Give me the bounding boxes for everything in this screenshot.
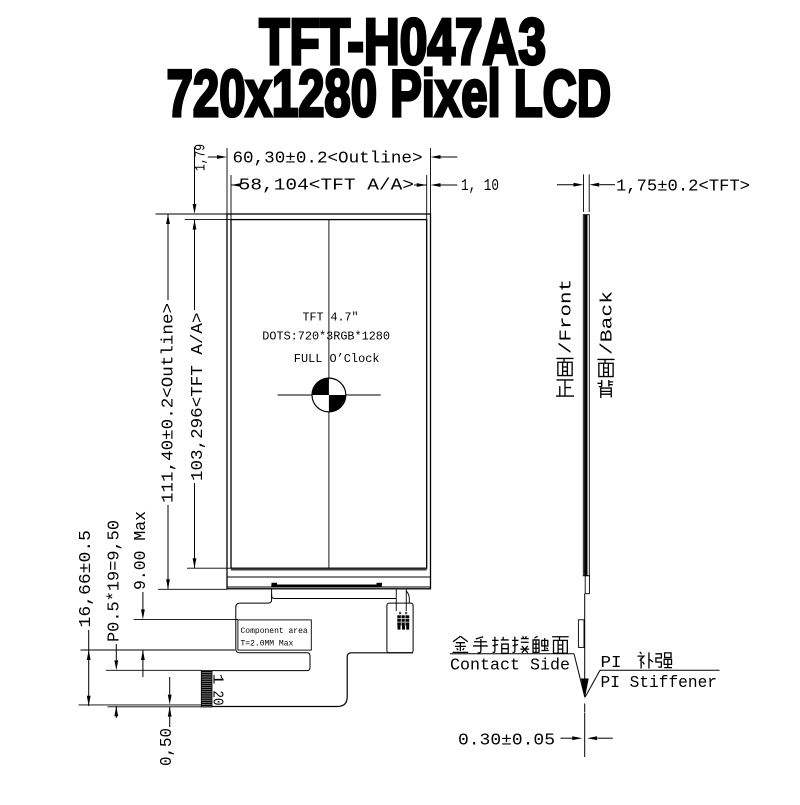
svg-text:9.00 Max: 9.00 Max bbox=[131, 511, 150, 590]
svg-text:FULL O’Clock: FULL O’Clock bbox=[294, 352, 380, 366]
svg-text:PI: PI bbox=[601, 653, 622, 672]
svg-text:1,75±0.2<TFT>: 1,75±0.2<TFT> bbox=[616, 177, 750, 196]
svg-text:/Back: /Back bbox=[597, 291, 616, 355]
svg-text:1, 10: 1, 10 bbox=[461, 176, 499, 195]
svg-text:0,50: 0,50 bbox=[157, 728, 176, 766]
svg-text:20: 20 bbox=[209, 691, 226, 706]
svg-text:1,79: 1,79 bbox=[193, 144, 210, 171]
svg-text:T=2.0MM Max: T=2.0MM Max bbox=[241, 640, 294, 649]
svg-text:Contact Side: Contact Side bbox=[450, 656, 570, 675]
svg-text:58,104<TFT A/A>: 58,104<TFT A/A> bbox=[239, 176, 414, 195]
svg-text:TFT 4.7″: TFT 4.7″ bbox=[303, 311, 359, 325]
svg-text:P0.5*19=9,50: P0.5*19=9,50 bbox=[104, 520, 123, 642]
svg-text:0.30±0.05: 0.30±0.05 bbox=[458, 731, 555, 750]
svg-text:16,66±0.5: 16,66±0.5 bbox=[76, 530, 95, 628]
svg-text:PI Stiffener: PI Stiffener bbox=[601, 673, 718, 692]
svg-text:/Front: /Front bbox=[556, 279, 575, 354]
svg-text:720x1280 Pixel LCD: 720x1280 Pixel LCD bbox=[167, 57, 611, 131]
svg-text:111,40±0.2<Outline>: 111,40±0.2<Outline> bbox=[158, 303, 177, 503]
svg-text:Component area: Component area bbox=[241, 627, 308, 636]
svg-text:DOTS:720*3RGB*1280: DOTS:720*3RGB*1280 bbox=[262, 330, 390, 344]
svg-text:60,30±0.2<Outline>: 60,30±0.2<Outline> bbox=[233, 149, 423, 168]
svg-text:103,296<TFT A/A>: 103,296<TFT A/A> bbox=[188, 313, 207, 482]
svg-text:1: 1 bbox=[209, 674, 226, 685]
